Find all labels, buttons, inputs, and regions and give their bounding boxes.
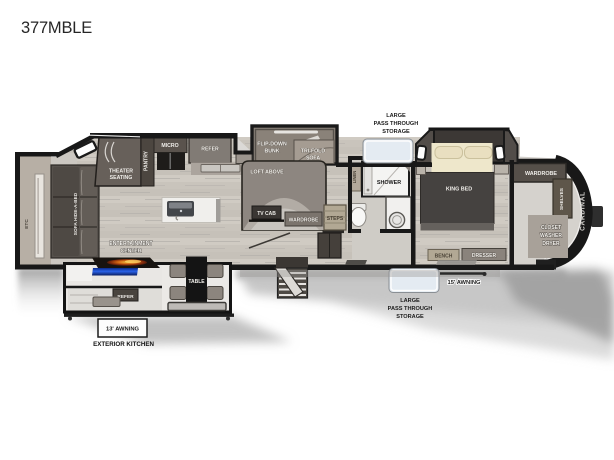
svg-text:TRI-FOLD: TRI-FOLD (301, 149, 325, 155)
svg-text:CARDINAL: CARDINAL (580, 191, 587, 231)
svg-text:SOFA HIDE-A-BED: SOFA HIDE-A-BED (73, 192, 79, 235)
svg-text:15' AWNING: 15' AWNING (447, 280, 481, 286)
svg-text:FLIP-DOWN: FLIP-DOWN (257, 142, 287, 148)
svg-text:13' AWNING: 13' AWNING (106, 327, 140, 333)
svg-text:SHOWER: SHOWER (377, 180, 401, 186)
svg-text:WARDROBE: WARDROBE (525, 171, 557, 177)
svg-text:SEATING: SEATING (110, 175, 133, 181)
svg-text:STORAGE: STORAGE (396, 314, 424, 320)
svg-text:STORAGE: STORAGE (382, 129, 410, 135)
svg-text:SHELVES: SHELVES (559, 187, 565, 210)
svg-text:PASS THROUGH: PASS THROUGH (374, 121, 419, 127)
svg-text:LARGE: LARGE (386, 113, 406, 119)
svg-text:PANTRY: PANTRY (144, 150, 150, 171)
svg-text:LOFT ABOVE: LOFT ABOVE (250, 170, 284, 176)
svg-text:LARGE: LARGE (400, 298, 420, 304)
svg-text:KING BED: KING BED (446, 187, 472, 193)
svg-text:ETC: ETC (24, 219, 30, 229)
svg-text:CLOSET: CLOSET (541, 225, 561, 231)
svg-text:STEPS: STEPS (327, 216, 344, 222)
svg-text:MICRO: MICRO (161, 143, 178, 149)
svg-text:REFER: REFER (201, 147, 219, 153)
svg-text:TV CAB: TV CAB (257, 211, 276, 217)
svg-text:PASS THROUGH: PASS THROUGH (388, 306, 433, 312)
svg-text:WARDROBE: WARDROBE (289, 218, 319, 224)
svg-text:WASHER: WASHER (540, 233, 562, 239)
svg-text:ENTERTAINMENT: ENTERTAINMENT (109, 241, 153, 247)
svg-text:EXTERIOR KITCHEN: EXTERIOR KITCHEN (93, 341, 154, 348)
svg-text:DRESSER: DRESSER (472, 253, 497, 259)
svg-text:THEATER: THEATER (109, 169, 133, 175)
svg-text:CENTER: CENTER (121, 249, 142, 255)
svg-text:TABLE: TABLE (188, 279, 205, 285)
svg-text:BENCH: BENCH (435, 254, 453, 260)
svg-text:BUNK: BUNK (265, 149, 280, 155)
svg-text:LINEN: LINEN (352, 171, 357, 184)
svg-text:DRYER: DRYER (542, 241, 560, 247)
